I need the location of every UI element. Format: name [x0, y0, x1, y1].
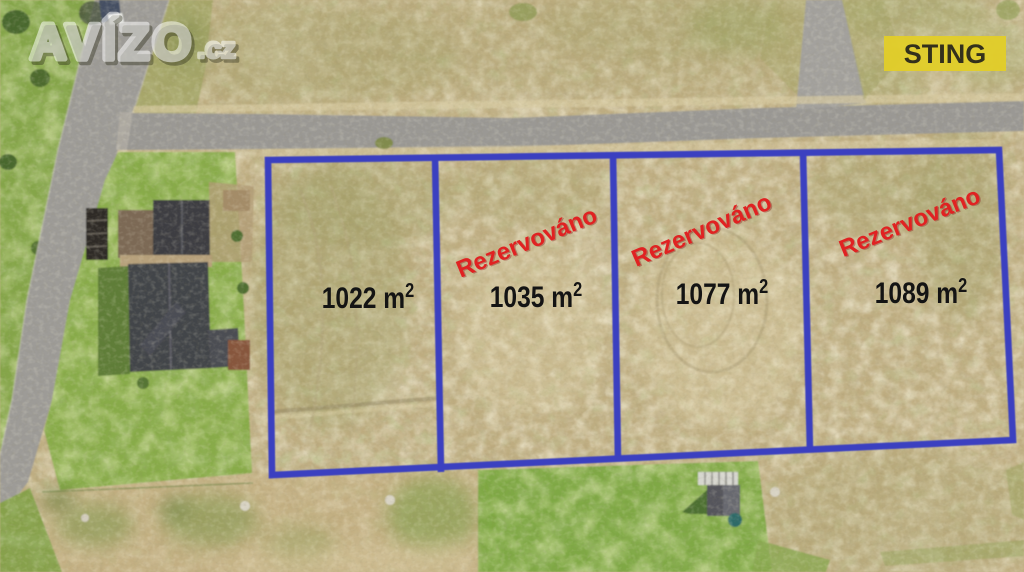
svg-text:1035 m2: 1035 m2	[490, 277, 583, 313]
svg-text:1077 m2: 1077 m2	[676, 274, 769, 310]
svg-text:STING: STING	[904, 39, 987, 69]
svg-text:AVÍZO: AVÍZO	[30, 14, 194, 70]
svg-text:1022 m2: 1022 m2	[322, 278, 415, 314]
svg-text:1089 m2: 1089 m2	[875, 273, 968, 309]
svg-text:.cz: .cz	[197, 33, 236, 65]
